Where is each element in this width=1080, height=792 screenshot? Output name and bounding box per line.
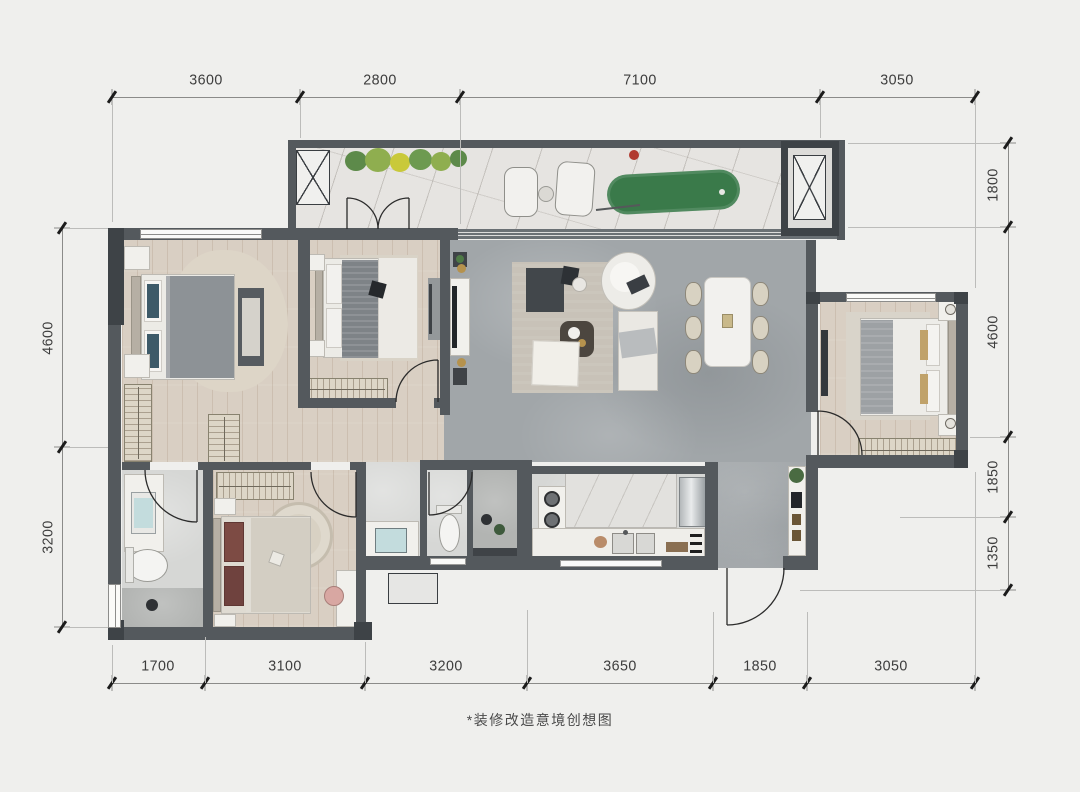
kitchen-deco — [594, 536, 607, 548]
ext-line — [69, 627, 108, 628]
wall — [532, 466, 710, 474]
duct-shaft — [388, 573, 438, 604]
cabinet-handle — [690, 534, 702, 537]
bedroom3-wardrobe — [216, 472, 294, 500]
desk-chair — [324, 586, 344, 606]
wall — [806, 292, 820, 304]
ext-line — [365, 642, 366, 683]
deco-knob — [457, 264, 466, 273]
bedroom4-tv-panel — [821, 330, 828, 396]
ext-line — [807, 612, 808, 683]
dim-label-right-1: 4600 — [985, 315, 1002, 349]
ottoman — [531, 340, 580, 387]
cabinet-handle — [690, 542, 702, 545]
deco-box — [453, 368, 467, 385]
ext-line — [975, 104, 976, 288]
sofa-cushions — [526, 268, 564, 312]
dim-line-bottom — [112, 683, 975, 684]
nightstand — [214, 498, 236, 515]
lounge-chair — [504, 167, 538, 217]
bed2-pillow — [326, 264, 342, 304]
bed4-pillow-gold — [920, 330, 928, 360]
shower-head — [146, 599, 158, 611]
dining-centerpiece — [722, 314, 733, 328]
ext-line — [300, 104, 301, 138]
ext-line — [848, 227, 1001, 228]
dim-label-bottom-0: 1700 — [141, 658, 175, 675]
dining-chair — [752, 316, 769, 340]
dim-label-top-2: 7100 — [623, 72, 657, 89]
ext-line — [69, 228, 108, 229]
wall — [298, 398, 396, 408]
ext-line — [460, 104, 461, 224]
dim-label-top-3: 3050 — [880, 72, 914, 89]
bed1-pillow-teal — [147, 284, 159, 318]
ext-line — [900, 517, 1001, 518]
bed1-bench-cushion — [242, 298, 260, 356]
dim-label-top-0: 3600 — [189, 72, 223, 89]
wall — [956, 302, 968, 460]
dim-label-left-0: 4600 — [40, 321, 57, 355]
plant — [390, 153, 410, 172]
wall — [420, 460, 532, 470]
plant — [789, 468, 804, 483]
wall — [108, 627, 372, 640]
toilet — [439, 514, 460, 552]
dim-label-bottom-4: 1850 — [743, 658, 777, 675]
dim-label-top-1: 2800 — [363, 72, 397, 89]
wall — [806, 302, 818, 412]
shower1-floor — [122, 588, 203, 627]
wall — [350, 462, 366, 470]
wall — [517, 466, 532, 566]
nightstand-lamp — [945, 418, 956, 429]
caption: *装修改造意境创想图 — [0, 710, 1080, 730]
bedroom2-wardrobe — [304, 378, 388, 400]
ext-line — [970, 437, 1001, 438]
dim-label-bottom-3: 3650 — [603, 658, 637, 675]
ext-line — [527, 610, 528, 683]
bed3-pillow-maroon — [224, 522, 244, 562]
tv-screen — [452, 286, 457, 348]
bed4-pillow — [926, 370, 940, 412]
deco-knob — [457, 358, 466, 367]
wall — [806, 455, 968, 468]
dining-chair — [685, 316, 702, 340]
ext-line — [112, 104, 113, 222]
window — [108, 584, 121, 628]
wall — [198, 462, 311, 470]
duct-shaft — [296, 150, 330, 205]
wall — [356, 470, 366, 627]
window-sill — [560, 560, 662, 567]
dining-chair — [752, 282, 769, 306]
dim-line-left — [62, 228, 63, 627]
shower-head — [481, 514, 492, 525]
faucet — [623, 530, 628, 535]
plant — [409, 149, 432, 170]
elevator-shaft — [793, 155, 826, 220]
dining-chair — [752, 350, 769, 374]
hall-wardrobe — [124, 384, 152, 462]
kitchen-counter-top — [565, 472, 677, 528]
bed3-pillow-maroon — [224, 566, 244, 606]
wall — [122, 462, 150, 470]
dining-chair — [685, 350, 702, 374]
plant — [450, 150, 467, 167]
ext-line — [800, 590, 1001, 591]
shower-partition — [473, 548, 517, 556]
wall — [420, 470, 427, 557]
bed4-blanket — [861, 320, 893, 414]
plant — [431, 152, 451, 171]
side-table — [572, 277, 587, 292]
cabinet-handle — [690, 550, 702, 553]
ext-line — [205, 637, 206, 683]
dim-label-right-2: 1850 — [985, 460, 1002, 494]
ext-line — [848, 143, 1001, 144]
wall — [954, 450, 968, 468]
dim-label-left-1: 3200 — [40, 520, 57, 554]
kitchen-sink — [612, 533, 634, 554]
kitchen-sink — [636, 533, 655, 554]
fridge — [679, 477, 706, 527]
wall — [806, 462, 818, 568]
sofa-throw — [618, 328, 657, 359]
nightstand — [124, 246, 150, 270]
stove-burner — [544, 512, 560, 528]
nightstand — [124, 354, 150, 378]
bed2-pillow — [326, 308, 342, 348]
wall — [705, 462, 718, 570]
wall — [467, 470, 473, 557]
dim-label-bottom-5: 3050 — [874, 658, 908, 675]
ext-line — [975, 472, 976, 683]
golf-hole — [719, 189, 725, 195]
dim-label-right-0: 1800 — [985, 168, 1002, 202]
plant — [345, 151, 367, 171]
wall — [354, 622, 372, 640]
dining-chair — [685, 282, 702, 306]
bed4-pillow-gold — [920, 374, 928, 404]
hall-wardrobe — [208, 414, 240, 464]
entry-door-arc — [727, 568, 784, 625]
dim-line-top — [112, 97, 975, 98]
wall — [108, 228, 124, 325]
entry-frame — [792, 514, 801, 525]
wall — [356, 556, 718, 570]
bath1-sink-basin — [134, 498, 153, 528]
bath2-sink — [375, 528, 407, 553]
toilet-tank — [436, 505, 462, 514]
wall — [298, 240, 310, 405]
bedroom2-tv-screen — [429, 284, 432, 334]
dim-label-right-3: 1350 — [985, 536, 1002, 570]
ext-line — [112, 645, 113, 683]
coffee-table-plate — [568, 327, 580, 339]
bed2-blanket-gray — [342, 260, 380, 358]
bed4-pillow — [926, 324, 940, 366]
wall — [440, 240, 450, 415]
cutting-board — [666, 542, 688, 552]
ext-line — [713, 612, 714, 683]
plant — [456, 255, 464, 263]
ext-line — [820, 104, 821, 138]
wall — [203, 470, 213, 627]
dim-label-bottom-1: 3100 — [268, 658, 302, 675]
lounge-chair — [554, 161, 596, 218]
wall — [288, 140, 845, 148]
nightstand-lamp — [945, 304, 956, 315]
entry-switch-panel — [791, 492, 802, 508]
bed3-headboard — [213, 518, 221, 612]
bed1-blanket — [166, 276, 234, 378]
dim-line-right — [1008, 143, 1009, 590]
plant — [494, 524, 505, 535]
flower-pot — [629, 150, 639, 160]
window — [846, 293, 936, 302]
entry-frame — [792, 530, 801, 541]
plant — [365, 148, 391, 172]
ext-line — [69, 447, 108, 448]
window-sill — [430, 558, 466, 565]
bed2-duvet — [378, 258, 417, 358]
stove-burner — [544, 491, 560, 507]
wall — [954, 292, 968, 304]
window — [140, 229, 262, 239]
toilet-tank — [125, 547, 134, 583]
nightstand — [214, 614, 236, 627]
shower2-floor — [473, 470, 517, 548]
floorplan-canvas: 3600 2800 7100 3050 1700 3100 3200 3650 … — [0, 0, 1080, 792]
side-table — [538, 186, 554, 202]
dim-label-bottom-2: 3200 — [429, 658, 463, 675]
wall — [288, 140, 296, 238]
